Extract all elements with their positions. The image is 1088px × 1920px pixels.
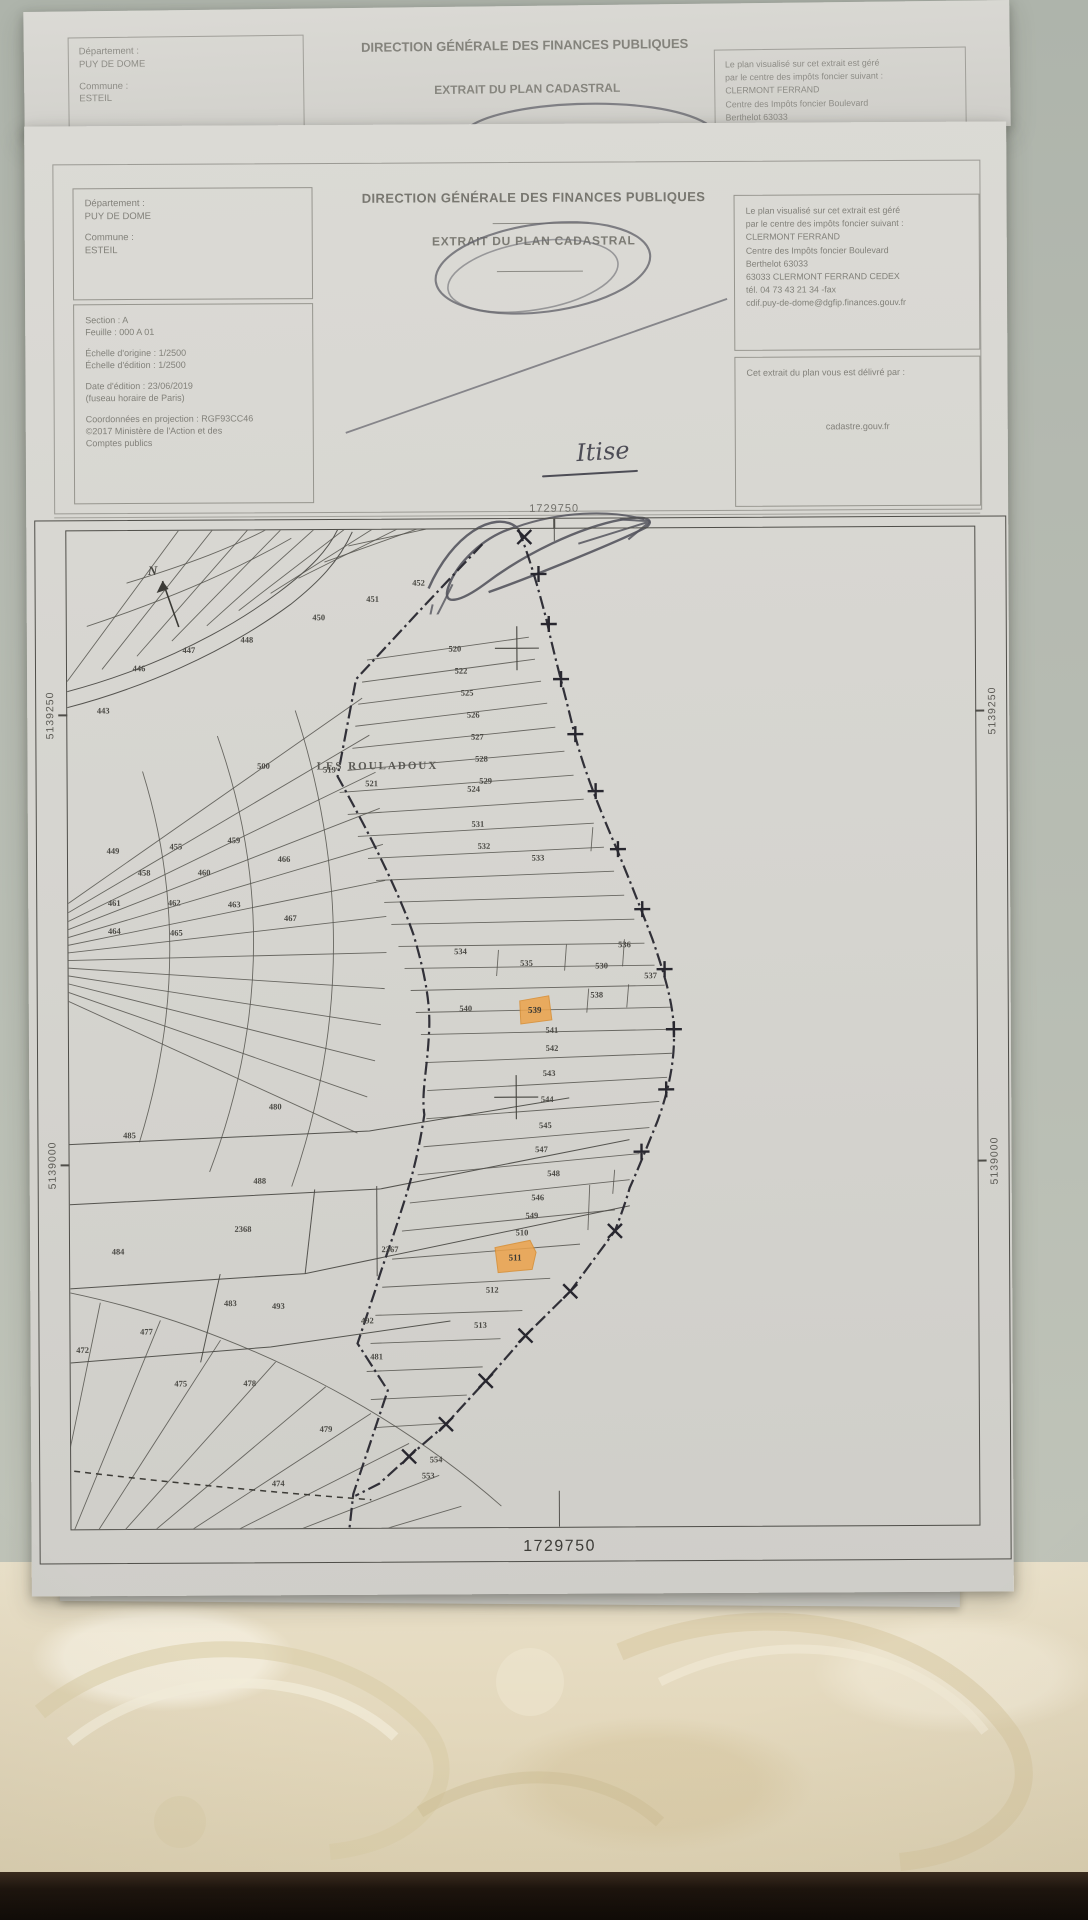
parcel-number-533: 533 (532, 853, 545, 863)
parcel-number-525: 525 (461, 688, 474, 698)
sheet-line: Feuille : 000 A 01 (85, 325, 301, 338)
map-inner-border: N LES ROULADOUX 443446447448450451452500… (65, 526, 980, 1531)
parcel-number-547: 547 (535, 1144, 549, 1154)
fabric-pattern (0, 1562, 1088, 1880)
text-line: Le plan visualisé sur cet extrait est gé… (746, 204, 968, 218)
copyright-line-2: Comptes publics (86, 437, 302, 450)
parcel-number-537: 537 (644, 970, 658, 980)
strip-parcels (339, 636, 676, 1427)
grid-crosses (492, 626, 542, 1119)
parcel-number-535: 535 (520, 958, 533, 968)
parcel-number-520: 520 (449, 644, 462, 654)
parcel-number-484: 484 (112, 1247, 126, 1257)
parcel-number-448: 448 (240, 635, 253, 645)
bottom-dashed-boundary (74, 1470, 371, 1502)
parcel-number-511: 511 (509, 1252, 523, 1262)
right-upper-tick (975, 710, 984, 712)
upper-parcel-fan (66, 527, 463, 682)
parcel-number-2367: 2367 (382, 1244, 400, 1254)
parcel-number-553: 553 (422, 1470, 435, 1480)
behind-department-box: Département : PUY DE DOME Commune : ESTE… (68, 35, 305, 138)
issued-by-label: Cet extrait du plan vous est délivré par… (746, 366, 968, 379)
parcel-number-549: 549 (525, 1210, 538, 1220)
department-value: PUY DE DOME (85, 210, 301, 224)
parcel-number-465: 465 (170, 928, 183, 938)
parcel-number-530: 530 (595, 960, 608, 970)
map-right-northing-lower: 5139000 (988, 1124, 1000, 1196)
right-lower-tick (978, 1160, 987, 1162)
parcel-number-529: 529 (479, 776, 492, 786)
parcel-number-545: 545 (539, 1120, 552, 1130)
cadastral-map: N LES ROULADOUX 443446447448450451452500… (66, 527, 979, 1530)
text-line: cdif.puy-de-dome@dgfip.finances.gouv.fr (746, 296, 968, 310)
department-commune-box: Département : PUY DE DOME Commune : ESTE… (72, 187, 313, 300)
parcel-number-510: 510 (516, 1227, 529, 1237)
boundary-dashdot-crosses (350, 528, 676, 1496)
bottom-parcels (69, 1098, 630, 1363)
document-title: DIRECTION GÉNÉRALE DES FINANCES PUBLIQUE… (320, 189, 746, 206)
parcel-number-485: 485 (123, 1130, 136, 1140)
cadastral-extract-sheet: Département : PUY DE DOME Commune : ESTE… (24, 121, 1014, 1596)
issued-by-box: Cet extrait du plan vous est délivré par… (734, 356, 981, 507)
map-right-northing-upper: 5139250 (986, 674, 998, 746)
parcel-number-512: 512 (486, 1285, 499, 1295)
parcel-number-539: 539 (528, 1005, 542, 1015)
scale-origin-line: Échelle d'origine : 1/2500 (85, 346, 301, 359)
table-edge-dark-strip (0, 1872, 1088, 1920)
parcel-number-450: 450 (312, 612, 325, 622)
north-letter: N (147, 563, 158, 578)
text-line: CLERMONT FERRAND (746, 230, 968, 244)
scale-edition-line: Échelle d'édition : 1/2500 (85, 358, 301, 371)
parcel-number-532: 532 (478, 841, 491, 851)
parcel-number-492: 492 (361, 1315, 374, 1325)
parcel-number-481: 481 (370, 1351, 383, 1361)
issued-by-value: cadastre.gouv.fr (747, 420, 969, 433)
edition-date-line: Date d'édition : 23/06/2019 (85, 379, 301, 392)
parcel-number-544: 544 (541, 1094, 555, 1104)
text-line: Centre des Impôts foncier Boulevard (746, 243, 968, 257)
background-sheet-top: Département : PUY DE DOME Commune : ESTE… (23, 0, 1010, 138)
parcel-number-479: 479 (320, 1424, 333, 1434)
parcel-number-522: 522 (455, 666, 468, 676)
parcel-number-540: 540 (459, 1003, 472, 1013)
section-line: Section : A (85, 313, 301, 326)
parcel-number-474: 474 (272, 1478, 286, 1488)
behind-subtitle: EXTRAIT DU PLAN CADASTRAL (344, 80, 710, 98)
parcel-number-543: 543 (543, 1068, 556, 1078)
parcel-number-472: 472 (76, 1345, 89, 1355)
parcel-number-483: 483 (224, 1298, 237, 1308)
map-bottom-easting-label: 1729750 (480, 1537, 640, 1556)
commune-value: ESTEIL (85, 244, 301, 258)
text-line: par le centre des impôts foncier suivant… (746, 217, 968, 231)
parcel-number-478: 478 (243, 1378, 256, 1388)
parcel-number-460: 460 (198, 867, 211, 877)
parcel-number-463: 463 (228, 899, 241, 909)
parcel-number-467: 467 (284, 913, 298, 923)
parcel-number-459: 459 (228, 835, 241, 845)
map-left-northing-lower: 5139000 (46, 1129, 58, 1201)
text-line: 63033 CLERMONT FERRAND CEDEX (746, 270, 968, 284)
parcel-number-542: 542 (546, 1043, 559, 1053)
parcel-number-466: 466 (278, 854, 291, 864)
parcel-number-477: 477 (140, 1327, 154, 1337)
parcel-number-546: 546 (531, 1192, 544, 1202)
parcel-number-527: 527 (471, 732, 485, 742)
parcel-number-464: 464 (108, 926, 122, 936)
parcel-number-538: 538 (590, 989, 603, 999)
projection-line: Coordonnées en projection : RGF93CC46 (86, 412, 302, 425)
parcel-number-488: 488 (253, 1176, 266, 1186)
parcel-number-513: 513 (474, 1320, 487, 1330)
behind-title: DIRECTION GÉNÉRALE DES FINANCES PUBLIQUE… (310, 35, 740, 55)
patterned-fabric (0, 1562, 1088, 1880)
parcel-number-462: 462 (168, 898, 181, 908)
parcel-number-500: 500 (257, 761, 270, 771)
parcel-number-541: 541 (546, 1025, 559, 1035)
parcel-number-480: 480 (269, 1101, 282, 1111)
parcel-number-461: 461 (108, 898, 121, 908)
north-arrow: N (147, 563, 179, 627)
section-scale-box: Section : A Feuille : 000 A 01 Échelle d… (73, 303, 314, 504)
parcel-number-528: 528 (475, 754, 488, 764)
document-subtitle: EXTRAIT DU PLAN CADASTRAL (351, 233, 717, 249)
lower-parcel-fan (66, 1291, 502, 1530)
parcel-number-536: 536 (618, 939, 631, 949)
parcel-number-447: 447 (183, 645, 197, 655)
commune-label: Commune : (85, 232, 301, 246)
map-frame: 1729750 1729750 5139250 5139000 5139250 … (34, 515, 1011, 1564)
parcel-number-446: 446 (133, 663, 146, 673)
parcel-number-layer: 4434464474484504514525005195215245205225… (72, 576, 660, 1489)
parcel-number-449: 449 (107, 846, 120, 856)
parcel-number-548: 548 (547, 1168, 560, 1178)
parcel-number-493: 493 (272, 1301, 285, 1311)
parcel-number-519: 519 (323, 764, 336, 774)
copyright-line-1: ©2017 Ministère de l'Action et des (86, 424, 302, 437)
parcel-number-451: 451 (366, 594, 379, 604)
road (66, 527, 353, 710)
department-label: Département : (85, 197, 301, 211)
photo-of-cadastral-document: Département : PUY DE DOME Commune : ESTE… (0, 0, 1088, 1920)
parcel-number-452: 452 (412, 578, 425, 588)
text-line: Berthelot 63033 (746, 256, 968, 270)
parcel-number-526: 526 (467, 710, 480, 720)
map-top-easting-label: 1729750 (484, 502, 624, 515)
map-left-northing-upper: 5139250 (44, 679, 56, 751)
parcel-number-531: 531 (471, 819, 484, 829)
timezone-note: (fuseau horaire de Paris) (86, 391, 302, 404)
parcel-number-475: 475 (174, 1378, 187, 1388)
parcel-number-443: 443 (97, 705, 110, 715)
parcel-number-534: 534 (454, 946, 468, 956)
parcel-number-521: 521 (365, 778, 378, 788)
parcel-number-2368: 2368 (234, 1224, 251, 1234)
parcel-number-458: 458 (138, 868, 151, 878)
managed-by-box: Le plan visualisé sur cet extrait est gé… (734, 194, 981, 351)
parcel-number-455: 455 (170, 841, 183, 851)
behind-commune-value: ESTEIL (79, 91, 293, 106)
parcel-number-554: 554 (430, 1454, 444, 1464)
text-line: tél. 04 73 43 21 34 -fax (746, 283, 968, 297)
